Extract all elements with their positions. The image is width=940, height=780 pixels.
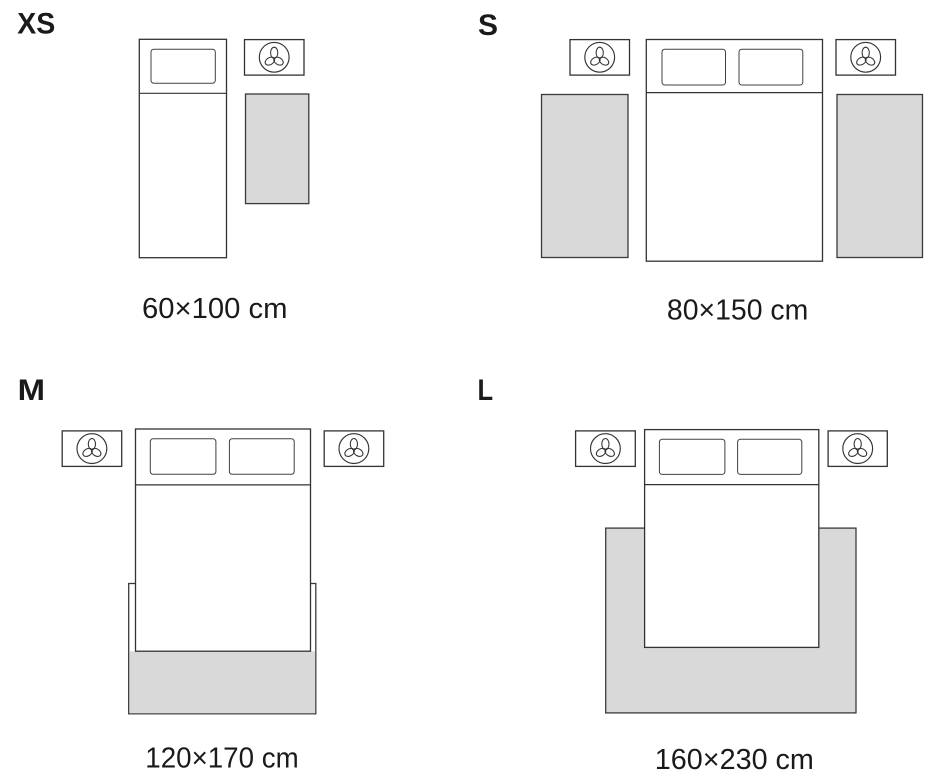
svg-text:160×230 cm: 160×230 cm	[655, 744, 814, 776]
svg-text:120×170 cm: 120×170 cm	[145, 742, 298, 774]
svg-text:S: S	[478, 9, 498, 42]
svg-text:60×100 cm: 60×100 cm	[142, 293, 288, 325]
svg-text:80×150 cm: 80×150 cm	[667, 295, 808, 327]
svg-text:XS: XS	[17, 8, 55, 41]
svg-text:L: L	[478, 374, 494, 407]
svg-text:M: M	[18, 374, 45, 407]
